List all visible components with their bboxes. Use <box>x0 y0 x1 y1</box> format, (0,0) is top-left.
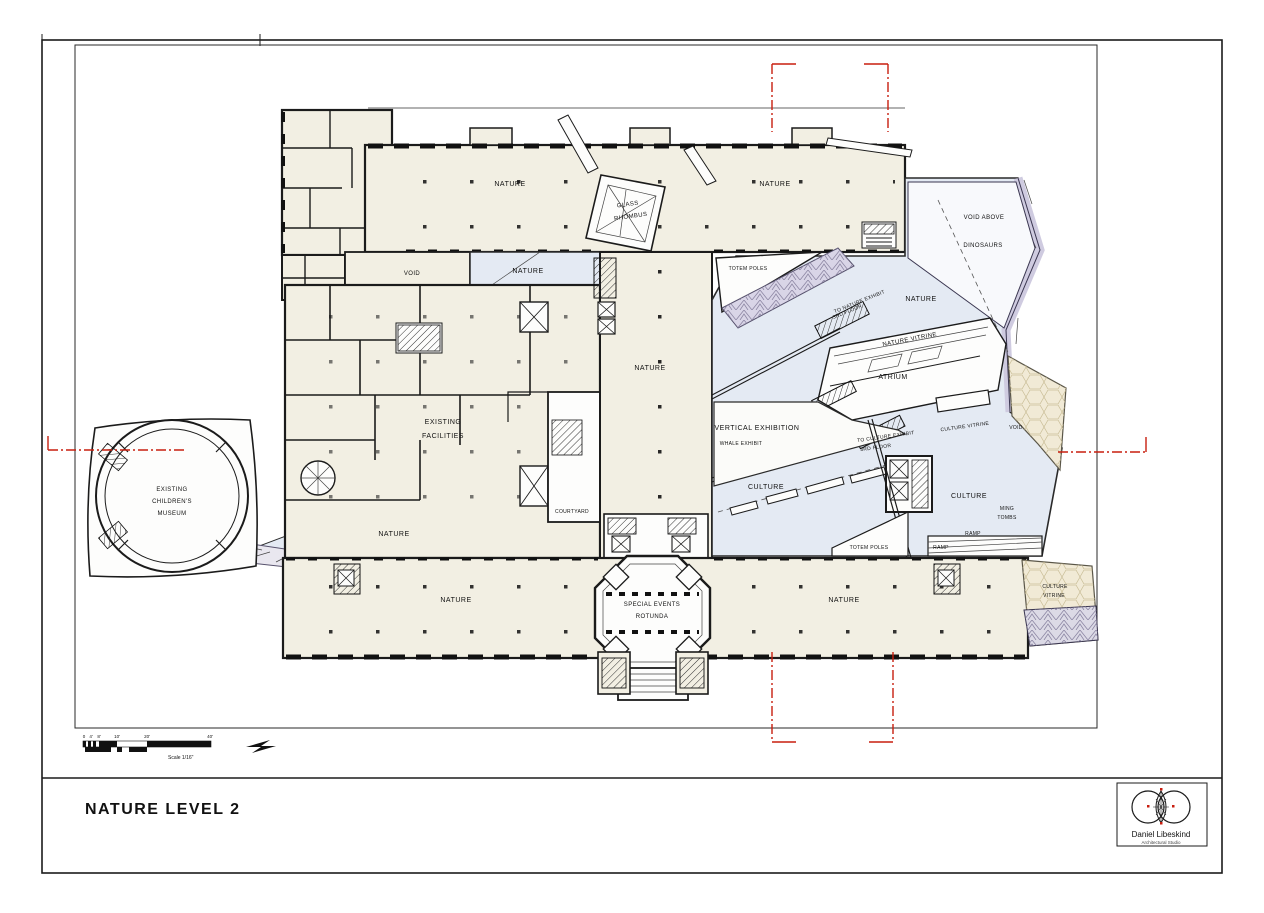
label-ming-tombs: TOMBS <box>997 515 1017 521</box>
logo-mark-icon <box>1147 805 1150 808</box>
label-culture-east: CULTURE <box>951 493 987 500</box>
elevator-icon <box>520 302 548 332</box>
label-childrens-museum: MUSEUM <box>157 511 186 517</box>
spiral-stair-icon <box>301 461 335 495</box>
north-arrow-icon <box>246 740 276 753</box>
label-ramp-b: RAMP <box>933 545 949 551</box>
logo-mark-icon <box>1160 822 1163 825</box>
label-atrium: ATRIUM <box>878 374 907 381</box>
label-courtyard: COURTYARD <box>555 509 589 515</box>
floor-plan-svg: NATURE NATURE GLASS RHOMBUS VOID NATURE … <box>0 0 1264 913</box>
label-nature-corridor: NATURE <box>634 365 665 372</box>
label-nature-nw: NATURE <box>494 181 525 188</box>
label-nature-mid: NATURE <box>512 268 543 275</box>
label-nature-plaza: NATURE <box>378 531 409 538</box>
sheet-title: NATURE LEVEL 2 <box>85 801 241 818</box>
scale-bar: 0 4' 8' 10' 20' 40' Scale 1/16" <box>83 734 276 761</box>
scale-label: Scale 1/16" <box>168 755 194 761</box>
title-block: NATURE LEVEL 2 Daniel Libeskind Architec… <box>85 783 1207 846</box>
label-rotunda: ROTUNDA <box>636 614 668 620</box>
logo-name: Daniel Libeskind <box>1132 830 1191 839</box>
scale-tick: 0 <box>83 734 86 739</box>
label-nature-ne: NATURE <box>759 181 790 188</box>
label-void-east: VOID <box>1009 425 1023 431</box>
label-childrens-museum: CHILDREN'S <box>152 499 192 505</box>
label-totem-poles-upper: TOTEM POLES <box>729 266 768 272</box>
logo-subtitle: Architectural Studio <box>1141 840 1181 845</box>
logo-mark-icon <box>1160 788 1163 791</box>
label-existing-facilities: EXISTING <box>425 419 462 426</box>
label-void-nw: VOID <box>404 271 421 277</box>
label-void-above: VOID ABOVE <box>964 215 1005 221</box>
elevator-icon <box>520 466 548 506</box>
glass-rhombus <box>586 175 665 251</box>
label-culture-vitrine-south: CULTURE <box>1042 584 1068 590</box>
scale-tick: 10' <box>114 734 120 739</box>
label-rotunda: SPECIAL EVENTS <box>624 602 680 608</box>
scale-tick: 40' <box>207 734 213 739</box>
label-dinosaurs: DINOSAURS <box>963 243 1002 249</box>
label-nature-sw: NATURE <box>440 597 471 604</box>
label-vertical-exhibition: VERTICAL EXHIBITION <box>715 425 800 432</box>
label-nature-crystal: NATURE <box>905 296 936 303</box>
drawing-sheet: NATURE NATURE GLASS RHOMBUS VOID NATURE … <box>0 0 1264 913</box>
architect-logo: Daniel Libeskind Architectural Studio <box>1117 783 1207 846</box>
nature-corridor <box>594 252 712 558</box>
special-events-rotunda <box>595 556 710 700</box>
logo-mark-icon <box>1172 805 1175 808</box>
scale-tick: 4' <box>89 734 93 739</box>
label-ramp-a: RAMP <box>965 531 981 537</box>
scale-tick: 20' <box>144 734 150 739</box>
label-culture-vitrine-south: VITRINE <box>1043 593 1065 599</box>
label-totem-poles-lower: TOTEM POLES <box>850 545 889 551</box>
label-whale-exhibit: WHALE EXHIBIT <box>720 441 763 447</box>
childrens-museum <box>88 419 257 577</box>
label-childrens-museum: EXISTING <box>156 487 187 493</box>
label-nature-se: NATURE <box>828 597 859 604</box>
label-culture-west: CULTURE <box>748 484 784 491</box>
scale-tick: 8' <box>97 734 101 739</box>
elevator-icon <box>886 456 932 512</box>
label-existing-facilities: FACILITIES <box>422 433 464 440</box>
label-ming-tombs: MING <box>1000 506 1014 512</box>
